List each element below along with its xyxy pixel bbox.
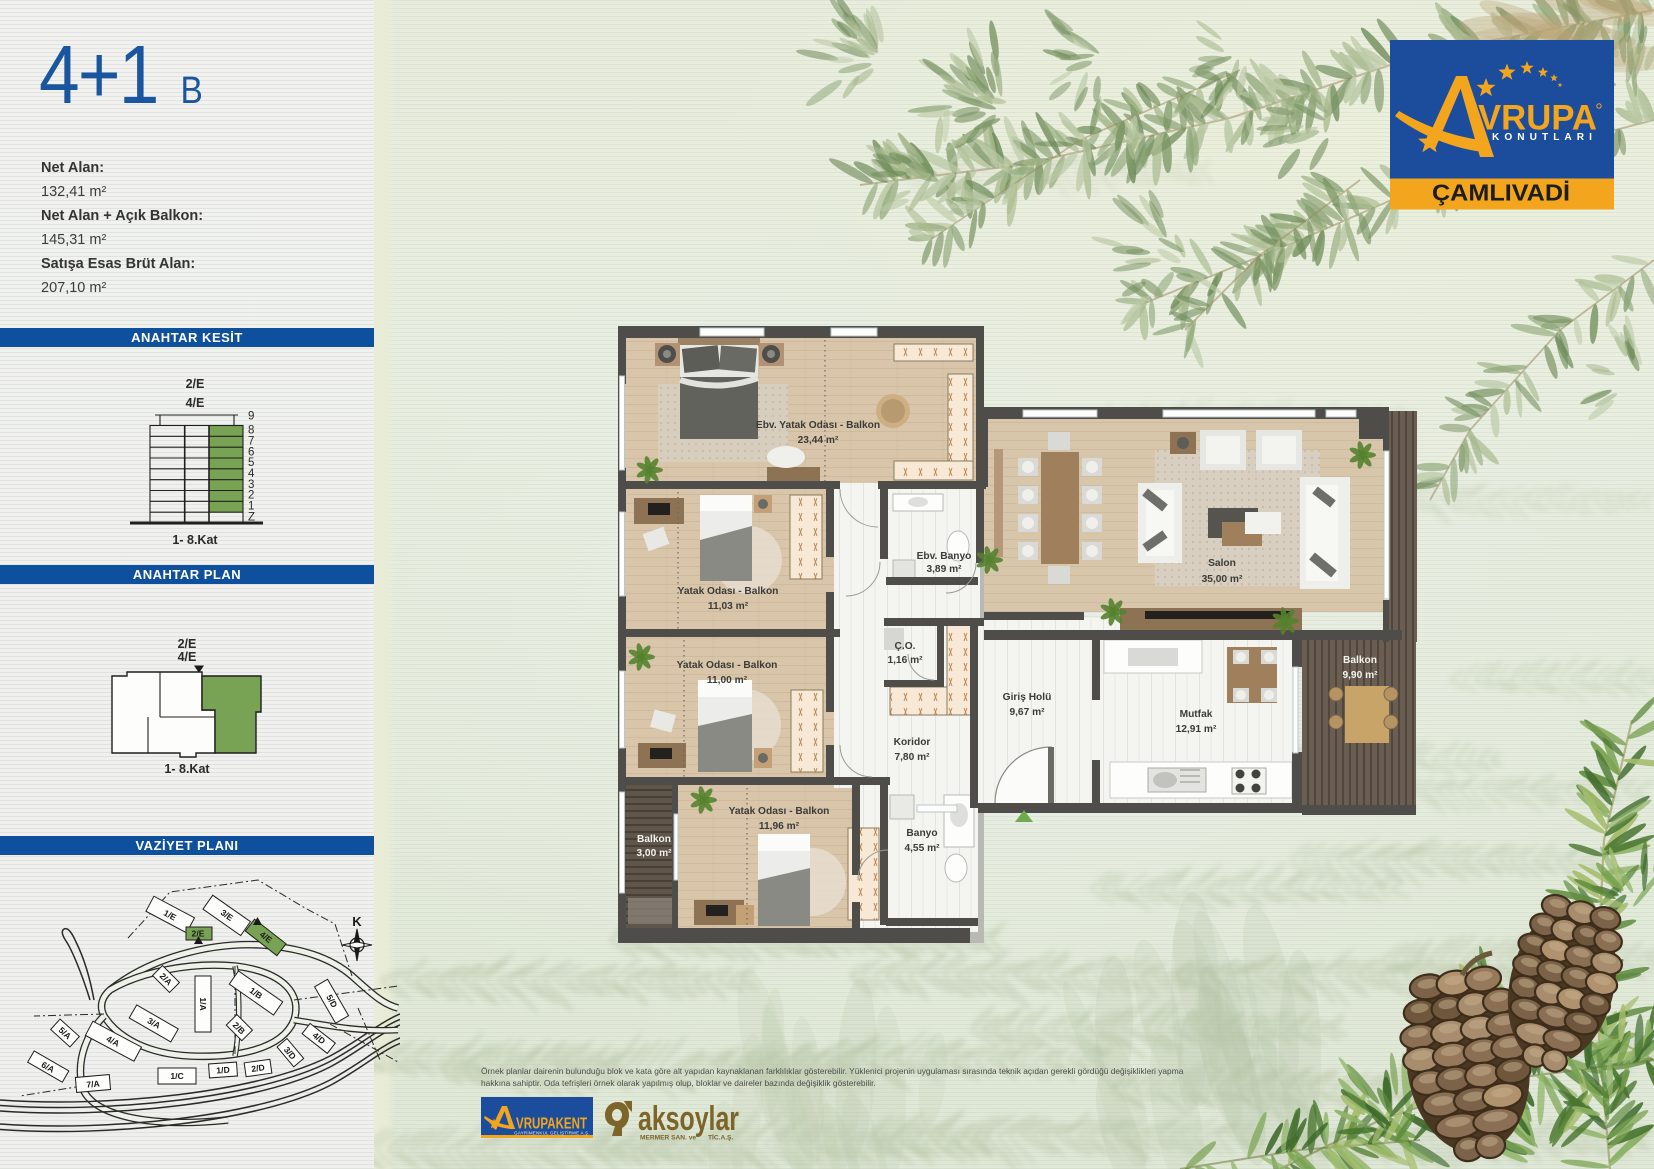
svg-text:2/D: 2/D — [251, 1062, 266, 1074]
svg-text:Z: Z — [248, 511, 255, 523]
svg-text:GAYRİMENKUL GELİŞTİRME A.Ş.: GAYRİMENKUL GELİŞTİRME A.Ş. — [514, 1130, 590, 1136]
svg-text:Mutfak: Mutfak — [1180, 709, 1213, 720]
svg-text:KONUTLARI: KONUTLARI — [1492, 132, 1597, 143]
svg-text:Balkon: Balkon — [1343, 655, 1377, 666]
svg-text:1- 8.Kat: 1- 8.Kat — [164, 762, 210, 776]
svg-text:Koridor: Koridor — [894, 737, 931, 748]
svg-text:12,91 m²: 12,91 m² — [1176, 724, 1217, 735]
svg-text:2/E: 2/E — [186, 377, 205, 391]
svg-text:3,00 m²: 3,00 m² — [636, 848, 672, 859]
svg-text:1/D: 1/D — [216, 1065, 230, 1076]
svg-text:1/A: 1/A — [198, 997, 208, 1010]
svg-text:4/E: 4/E — [178, 650, 197, 664]
svg-text:11,03 m²: 11,03 m² — [708, 601, 749, 612]
svg-text:1/C: 1/C — [170, 1071, 183, 1081]
svg-text:Yatak Odası - Balkon: Yatak Odası - Balkon — [729, 806, 830, 817]
svg-text:Salon: Salon — [1208, 558, 1236, 569]
svg-text:3,89 m²: 3,89 m² — [926, 564, 962, 575]
svg-text:9,67 m²: 9,67 m² — [1009, 707, 1045, 718]
svg-text:7,80 m²: 7,80 m² — [894, 752, 930, 763]
svg-text:2/E: 2/E — [178, 637, 197, 651]
svg-text:11,00 m²: 11,00 m² — [707, 675, 748, 686]
svg-text:Balkon: Balkon — [637, 834, 671, 845]
svg-text:9: 9 — [248, 411, 254, 423]
svg-text:1- 8.Kat: 1- 8.Kat — [172, 533, 218, 547]
svg-text:Ç.O.: Ç.O. — [895, 641, 916, 652]
svg-text:35,00 m²: 35,00 m² — [1202, 574, 1243, 585]
svg-text:Yatak Odası - Balkon: Yatak Odası - Balkon — [677, 660, 778, 671]
svg-text:Ebv. Yatak Odası - Balkon: Ebv. Yatak Odası - Balkon — [756, 420, 880, 431]
svg-text:Banyo: Banyo — [906, 828, 937, 839]
svg-text:K: K — [352, 914, 362, 929]
svg-text:Giriş Holü: Giriş Holü — [1003, 692, 1052, 703]
svg-text:4/E: 4/E — [186, 396, 205, 410]
svg-text:11,96 m²: 11,96 m² — [759, 821, 800, 832]
svg-text:Ebv. Banyo: Ebv. Banyo — [917, 551, 972, 562]
svg-text:1,16 m²: 1,16 m² — [887, 655, 923, 666]
svg-text:TİC.A.Ş.: TİC.A.Ş. — [708, 1134, 733, 1142]
svg-text:aksoylar: aksoylar — [638, 1100, 739, 1138]
svg-text:9,90 m²: 9,90 m² — [1342, 670, 1378, 681]
svg-text:4,55 m²: 4,55 m² — [904, 843, 940, 854]
svg-text:7/A: 7/A — [86, 1079, 100, 1090]
svg-text:ÇAMLIVADİ: ÇAMLIVADİ — [1432, 180, 1570, 206]
svg-text:Yatak Odası - Balkon: Yatak Odası - Balkon — [678, 586, 779, 597]
svg-text:23,44 m²: 23,44 m² — [798, 435, 839, 446]
svg-text:MERMER SAN. ve: MERMER SAN. ve — [640, 1135, 696, 1142]
